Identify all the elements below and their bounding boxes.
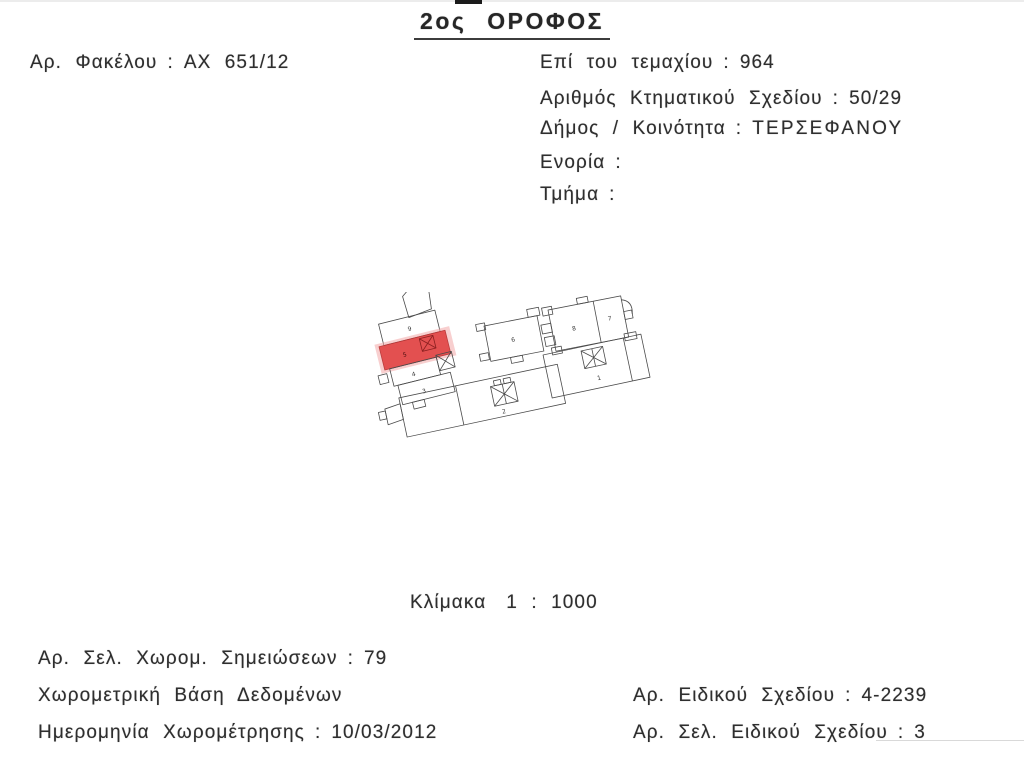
page-title: 2ος ΟΡΟΦΟΣ — [414, 8, 610, 40]
plan-left-block: 9 5 4 3 — [362, 292, 467, 416]
colon: : — [833, 88, 839, 109]
field-label: Δήμος / Κοινότητα — [540, 118, 726, 139]
field-label: Χωρομετρική Βάση Δεδομένων — [38, 685, 343, 706]
colon: : — [615, 152, 621, 173]
field-section: Τμήμα: — [540, 184, 626, 206]
field-label: Επί του τεμαχίου — [540, 52, 713, 73]
field-value: ΤΕΡΣΕΦΑΝΟΥ — [752, 118, 903, 139]
scan-artifact-mark — [455, 0, 482, 4]
room-number: 1 — [597, 374, 602, 382]
field-value: 10/03/2012 — [331, 722, 437, 743]
field-value: 4-2239 — [861, 685, 927, 706]
field-survey-notes-page: Αρ. Σελ. Χωρομ. Σημειώσεων:79 — [38, 648, 387, 670]
field-survey-date: Ημερομηνία Χωρομέτρησης:10/03/2012 — [38, 722, 437, 744]
colon: : — [315, 722, 321, 743]
room-number: 2 — [501, 408, 506, 416]
room-number: 3 — [422, 388, 428, 396]
floor-plan-drawing: 9 5 4 3 6 — [362, 292, 662, 460]
room-number: 8 — [572, 325, 577, 333]
colon: : — [609, 184, 615, 205]
field-plot: Επί του τεμαχίου:964 — [540, 52, 775, 74]
field-label: Τμήμα — [540, 184, 599, 205]
plan-top-left-block: 6 — [473, 305, 558, 369]
room-number: 4 — [411, 371, 417, 379]
field-value: ΑΧ 651/12 — [184, 52, 290, 73]
field-value: 1 : 1000 — [506, 592, 597, 613]
field-survey-database: Χωρομετρική Βάση Δεδομένων — [38, 685, 343, 707]
field-special-plan-number: Αρ. Ειδικού Σχεδίου:4-2239 — [633, 685, 927, 707]
field-label: Κλίμακα — [410, 592, 486, 613]
colon: : — [167, 52, 173, 73]
room-number: 6 — [511, 336, 516, 344]
field-scale: Κλίμακα1 : 1000 — [410, 592, 598, 614]
scan-faint-rule — [876, 740, 1024, 741]
scan-top-edge — [0, 0, 1024, 2]
field-value: 50/29 — [849, 88, 902, 109]
colon: : — [348, 648, 354, 669]
field-value: 79 — [364, 648, 387, 669]
colon: : — [736, 118, 742, 139]
field-cadastral-plan: Αριθμός Κτηματικού Σχεδίου:50/29 — [540, 88, 902, 110]
scanned-cadastral-sheet: 2ος ΟΡΟΦΟΣ Αρ. Φακέλου:ΑΧ 651/12 Επί του… — [0, 0, 1024, 768]
colon: : — [723, 52, 729, 73]
field-label: Αρ. Σελ. Ειδικού Σχεδίου — [633, 722, 888, 743]
field-label: Ενορία — [540, 152, 605, 173]
field-value: 964 — [740, 52, 775, 73]
field-file-number: Αρ. Φακέλου:ΑΧ 651/12 — [30, 52, 289, 74]
room-number: 7 — [607, 315, 612, 323]
field-parish: Ενορία: — [540, 152, 632, 174]
field-label: Ημερομηνία Χωρομέτρησης — [38, 722, 305, 743]
plan-top-right-block: 8 7 — [541, 292, 638, 355]
floor-plan-svg: 9 5 4 3 6 — [362, 292, 662, 460]
field-label: Αρ. Φακέλου — [30, 52, 157, 73]
field-label: Αριθμός Κτηματικού Σχεδίου — [540, 88, 823, 109]
room-number: 9 — [407, 325, 413, 333]
colon: : — [845, 685, 851, 706]
field-label: Αρ. Σελ. Χωρομ. Σημειώσεων — [38, 648, 338, 669]
page-title-row: 2ος ΟΡΟΦΟΣ — [0, 8, 1024, 40]
field-municipality: Δήμος / Κοινότητα:ΤΕΡΣΕΦΑΝΟΥ — [540, 118, 903, 140]
field-label: Αρ. Ειδικού Σχεδίου — [633, 685, 835, 706]
